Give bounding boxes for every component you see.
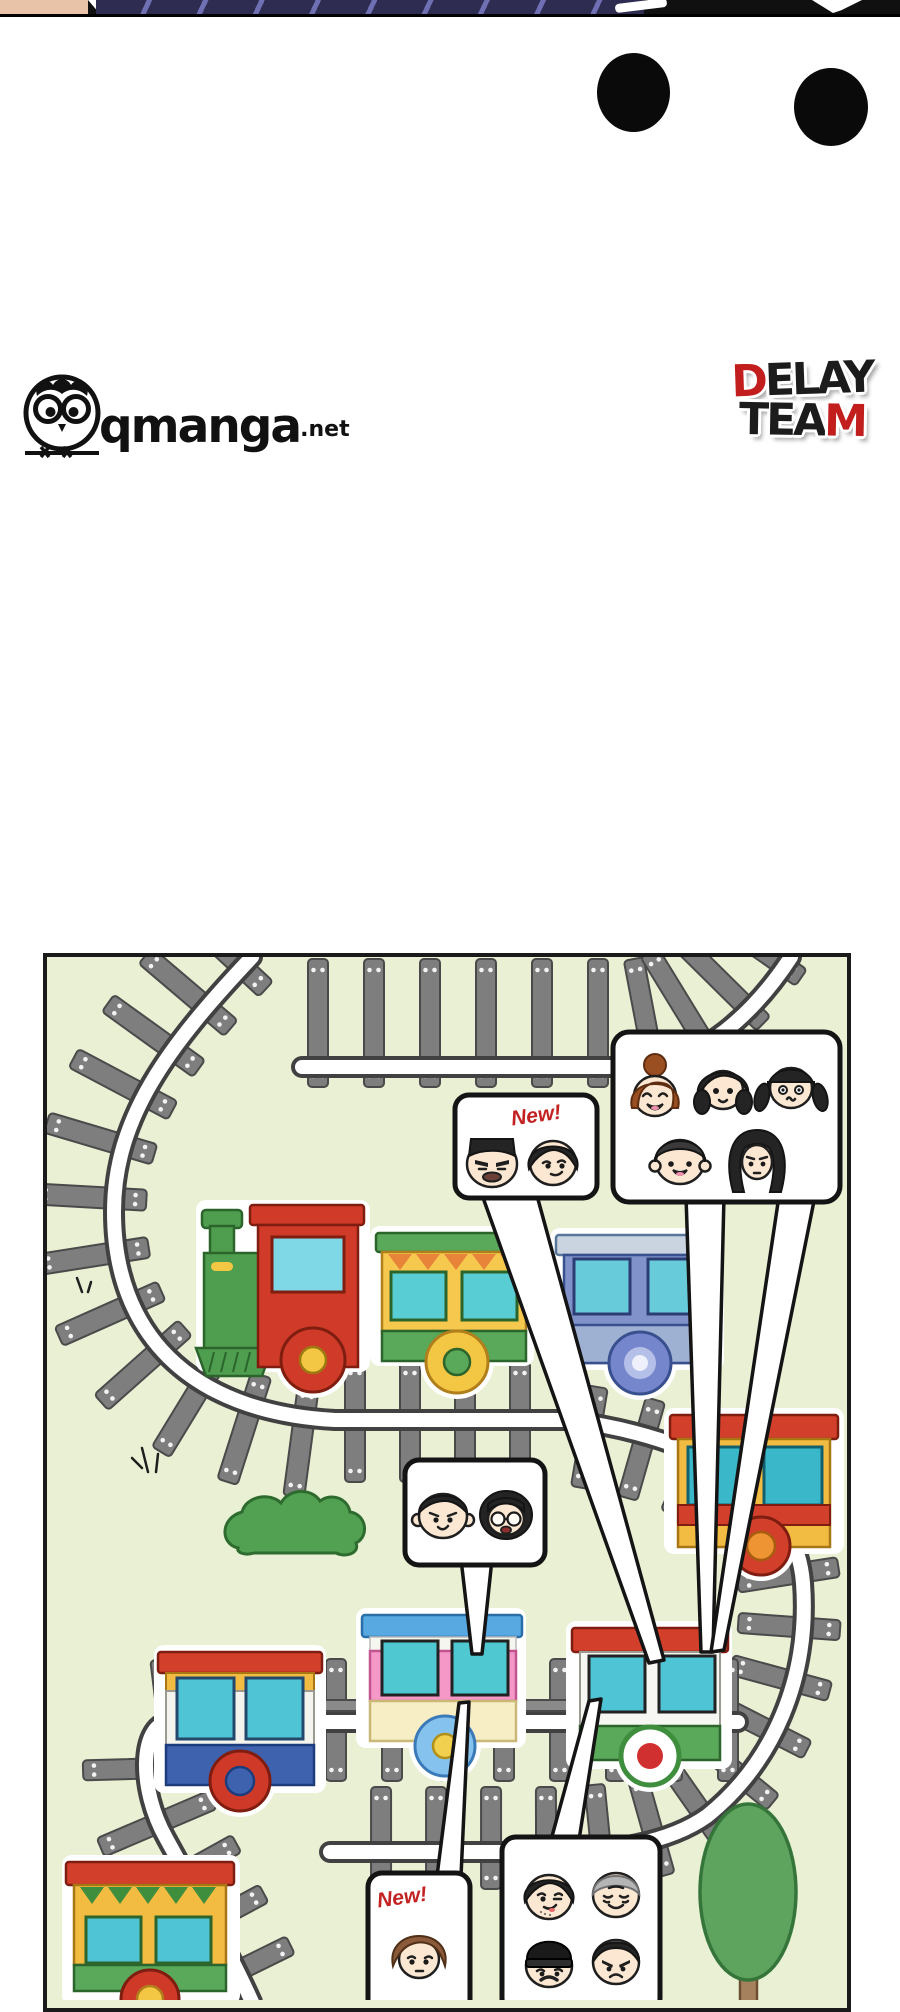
speech-bubble-new-top: New!	[455, 1095, 597, 1198]
bush-icon	[225, 1491, 365, 1554]
ellipsis-dot-2	[794, 68, 868, 146]
railroad-tie	[283, 1384, 319, 1498]
speech-bubble-pair	[405, 1460, 545, 1565]
face-man-angry-icon	[593, 1940, 639, 1984]
face-man-stubble-icon	[524, 1875, 573, 1919]
face-man-gray-old-icon	[593, 1873, 639, 1917]
face-woman-glasses-icon	[480, 1491, 532, 1539]
comic-page: { "top_strip": { "description": "cropped…	[0, 0, 900, 2000]
railroad-tie	[47, 1237, 150, 1275]
ellipsis-dot-1	[597, 53, 670, 132]
tree-icon	[700, 1804, 796, 2000]
skin-fragment	[0, 0, 88, 14]
toy-train-scene: New!	[47, 957, 847, 2000]
team-line: TEAM	[712, 399, 893, 443]
delay-team-logo: DELAY TEAM	[712, 360, 892, 442]
face-man-flattop-icon	[467, 1139, 517, 1187]
previous-panel-crop	[0, 0, 900, 17]
railroad-tie	[737, 1613, 840, 1640]
speech-bubble-group-of-five	[613, 1032, 840, 1202]
striped-suit-fragment	[96, 0, 644, 14]
qmanga-tld: .net	[300, 417, 349, 442]
zigzag-yellow-car	[62, 1855, 240, 2000]
face-man-beanie-icon	[526, 1942, 572, 1987]
train-illustration-panel: New!	[43, 953, 851, 2012]
speech-bubble-new-bottom: New!	[368, 1873, 470, 2000]
qmanga-logo: qmanga.net	[15, 366, 345, 476]
white-blue-car	[154, 1645, 326, 1817]
qmanga-wordmark: qmanga.net	[99, 399, 350, 454]
railroad-tie	[47, 1183, 147, 1210]
white-collar-fragment	[812, 0, 862, 13]
railroad-tie	[481, 1787, 501, 1889]
face-man-tousled-icon	[528, 1141, 577, 1185]
speech-bubble-group-of-four	[502, 1837, 660, 2000]
locomotive	[196, 1200, 370, 1398]
